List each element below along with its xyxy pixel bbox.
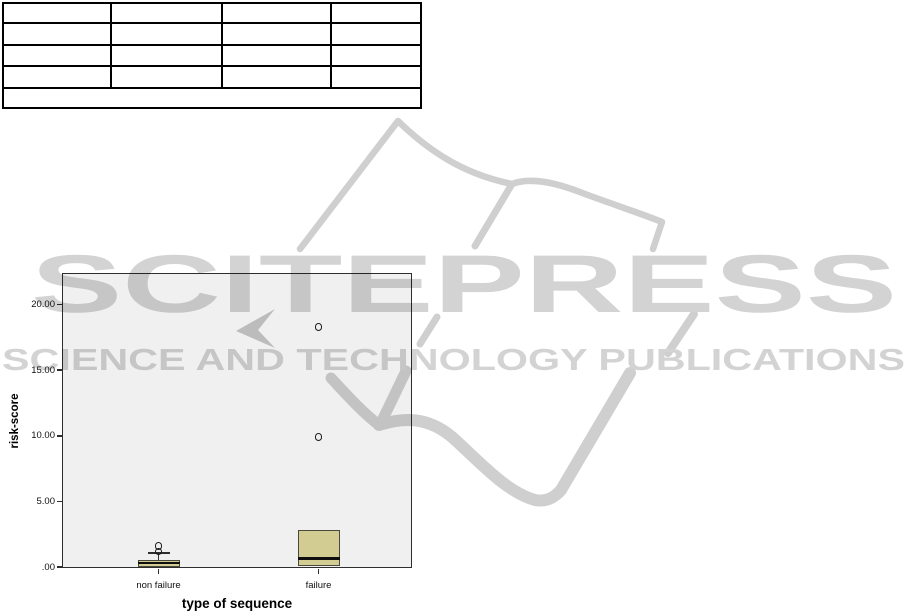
outlier-point: [315, 433, 323, 441]
median-line: [298, 557, 340, 560]
y-tick-mark: [57, 501, 62, 503]
y-tick-label: 20.00: [8, 299, 55, 310]
x-axis-title: type of sequence: [137, 596, 337, 611]
y-tick-label: .00: [8, 562, 55, 573]
y-tick-mark: [57, 435, 62, 437]
x-category-label: non failure: [114, 580, 204, 591]
plot-area: [62, 273, 412, 568]
y-tick-mark: [57, 369, 62, 371]
box-failure: [298, 530, 340, 567]
boxplot-figure: .005.0010.0015.0020.00non failurefailure…: [0, 0, 915, 615]
x-category-label: failure: [274, 580, 364, 591]
y-tick-label: 5.00: [8, 496, 55, 507]
y-axis-title: risk-score: [9, 374, 23, 468]
x-tick-mark: [318, 569, 320, 574]
y-tick-mark: [57, 304, 62, 306]
x-tick-mark: [158, 569, 160, 574]
paper-page: .005.0010.0015.0020.00non failurefailure…: [0, 0, 915, 615]
outlier-point: [315, 323, 323, 331]
y-tick-mark: [57, 566, 62, 568]
outlier-point: [155, 542, 163, 550]
median-line: [138, 562, 180, 565]
